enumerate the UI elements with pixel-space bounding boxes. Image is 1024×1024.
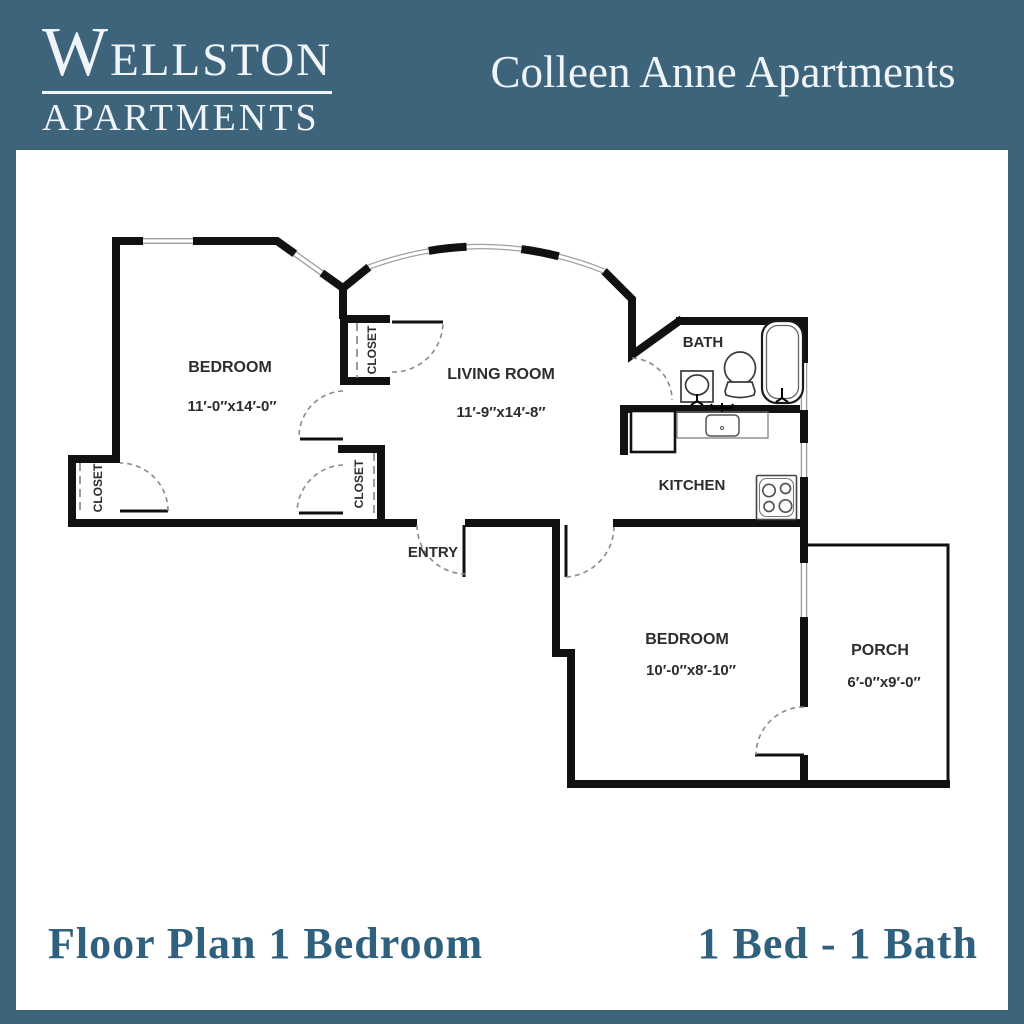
- bathroom-sink-icon: [681, 371, 713, 405]
- closet-left-label: CLOSET: [91, 463, 105, 512]
- closet-top-label: CLOSET: [365, 325, 379, 374]
- top-closet-door: [392, 322, 443, 372]
- porch-dims: 6′-0″x9′-0″: [847, 674, 920, 691]
- porch-walls: [808, 545, 948, 781]
- bay-window: [294, 252, 324, 275]
- walls: [68, 241, 950, 784]
- bedroom2-dims: 10′-0″x8′-10″: [646, 662, 736, 679]
- bedroom1-door: [299, 391, 343, 439]
- floor-plan-name: Floor Plan 1 Bedroom: [48, 918, 483, 969]
- kitchen-label: KITCHEN: [659, 477, 726, 494]
- logo-wellston-text: WELLSTON: [42, 16, 332, 94]
- wellston-logo: WELLSTON APARTMENTS: [42, 16, 332, 140]
- bedroom2-window: [800, 563, 808, 617]
- bedroom2-door: [566, 525, 614, 577]
- living-room-dims: 11′-9″x14′-8″: [456, 404, 545, 421]
- bedroom1-label: BEDROOM: [188, 359, 272, 376]
- flyer-page: { "header": { "logo": { "line1": "WELLST…: [0, 0, 1024, 1024]
- logo-apartments-text: APARTMENTS: [42, 96, 332, 140]
- kitchen-fixtures: [631, 403, 797, 520]
- left-closet-door: [120, 463, 168, 511]
- porch-door: [755, 707, 804, 755]
- bedroom-window: [143, 236, 193, 246]
- floor-plan-drawing: BEDROOM 11′-0″x14′-0″ LIVING ROOM 11′-9″…: [16, 150, 1008, 1010]
- porch-label: PORCH: [851, 642, 909, 659]
- bottom-closet-door: [297, 465, 343, 513]
- bedroom2-label: BEDROOM: [645, 631, 729, 648]
- bath-label: BATH: [683, 334, 724, 351]
- floor-plan-panel: BEDROOM 11′-0″x14′-0″ LIVING ROOM 11′-9″…: [16, 150, 1008, 1010]
- closet-rods: [80, 323, 374, 515]
- bed-bath-count: 1 Bed - 1 Bath: [698, 918, 978, 969]
- bath-door: [632, 358, 672, 400]
- bedroom1-dims: 11′-0″x14′-0″: [187, 398, 276, 415]
- living-room-label: LIVING ROOM: [447, 366, 555, 383]
- closet-bottom-label: CLOSET: [352, 459, 366, 508]
- entry-label: ENTRY: [408, 544, 458, 561]
- stove-icon: [757, 476, 797, 520]
- bathtub-icon: [762, 321, 803, 403]
- property-title: Colleen Anne Apartments: [440, 46, 1006, 98]
- refrigerator-icon: [631, 411, 675, 452]
- kitchen-window: [800, 443, 808, 477]
- arched-window: [369, 246, 604, 271]
- toilet-icon: [725, 352, 756, 398]
